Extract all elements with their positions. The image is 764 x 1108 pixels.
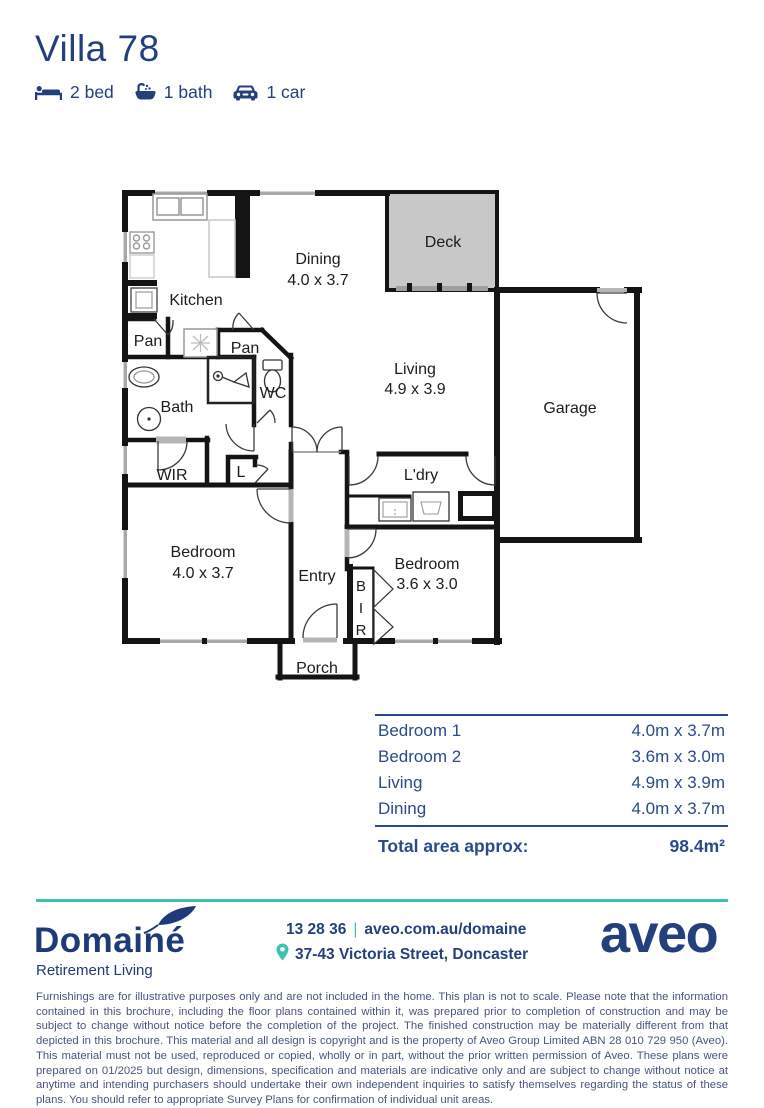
brand-name: Domainé xyxy=(34,921,185,961)
total-label: Total area approx: xyxy=(378,836,528,857)
room-name: Bedroom 1 xyxy=(378,721,461,740)
oven-appliance xyxy=(131,288,157,312)
separator: | xyxy=(353,921,357,939)
phone-number: 13 28 36 xyxy=(286,921,346,939)
label-bir-b: B xyxy=(356,578,366,595)
feature-baths: 1 bath xyxy=(135,82,213,103)
label-pantry-1: Pan xyxy=(134,333,162,350)
website-link[interactable]: aveo.com.au/domaine xyxy=(364,921,526,939)
bath-basin xyxy=(138,408,161,431)
contact-line-1: 13 28 36 | aveo.com.au/domaine xyxy=(276,921,536,939)
car-icon xyxy=(233,85,258,101)
bath-vanity xyxy=(129,367,159,387)
label-bedroom-2-dim: 3.6 x 3.0 xyxy=(396,576,457,593)
table-row: Dining 4.0m x 3.7m xyxy=(375,794,728,820)
wall-stub-2 xyxy=(125,313,157,319)
label-bath: Bath xyxy=(161,399,194,416)
contact-block: 13 28 36 | aveo.com.au/domaine 37-43 Vic… xyxy=(276,921,536,966)
feature-summary: 2 bed 1 bath 1 car xyxy=(35,82,305,103)
laundry-trough xyxy=(413,492,449,521)
table-row: Living 4.9m x 3.9m xyxy=(375,768,728,794)
room-name: Bedroom 2 xyxy=(378,747,461,766)
room-size: 4.0m x 3.7m xyxy=(631,799,725,818)
disclaimer-text: Furnishings are for illustrative purpose… xyxy=(36,990,728,1108)
kitchen-sink xyxy=(153,194,207,220)
page-title: Villa 78 xyxy=(35,28,160,70)
domaine-logo: Domainé Retirement Living xyxy=(32,905,232,985)
label-entry: Entry xyxy=(298,568,335,585)
feature-baths-label: 1 bath xyxy=(164,82,213,103)
bath-icon xyxy=(135,83,156,102)
room-name: Living xyxy=(378,773,422,792)
label-bir-i: I xyxy=(359,600,363,617)
location-pin-icon xyxy=(276,943,289,966)
feature-beds: 2 bed xyxy=(35,82,114,103)
label-wc: WC xyxy=(260,385,287,402)
total-value: 98.4m² xyxy=(670,836,725,857)
label-bir-r: R xyxy=(356,622,367,639)
bir-doors xyxy=(374,570,393,644)
label-living: Living xyxy=(394,361,436,378)
label-dining: Dining xyxy=(295,251,340,268)
label-bedroom-2: Bedroom xyxy=(395,556,460,573)
floor-plan: Deck Dining 4.0 x 3.7 Kitchen Pan Pan Li… xyxy=(110,180,660,700)
label-linen: L xyxy=(237,464,246,481)
fridge-space xyxy=(184,329,217,357)
washing-machine xyxy=(379,498,411,521)
laundry-cupboard xyxy=(458,491,497,521)
label-garage: Garage xyxy=(543,400,596,417)
label-laundry: L'dry xyxy=(404,467,438,484)
label-bedroom-1-dim: 4.0 x 3.7 xyxy=(172,565,233,582)
bed-icon xyxy=(35,84,62,101)
label-dining-dim: 4.0 x 3.7 xyxy=(287,272,348,289)
shower xyxy=(208,357,254,403)
feature-cars: 1 car xyxy=(233,82,305,103)
label-pantry-2: Pan xyxy=(231,340,259,357)
divider-line xyxy=(36,899,728,902)
label-kitchen: Kitchen xyxy=(169,292,222,309)
wall-stub-1 xyxy=(125,280,157,286)
cooktop xyxy=(130,232,154,278)
room-name: Dining xyxy=(378,799,426,818)
brand-tagline: Retirement Living xyxy=(36,962,153,979)
room-size: 4.9m x 3.9m xyxy=(631,773,725,792)
address-text: 37-43 Victoria Street, Doncaster xyxy=(295,946,528,964)
table-row: Bedroom 1 4.0m x 3.7m xyxy=(375,716,728,742)
aveo-logo: aveo xyxy=(600,903,717,965)
kitchen-peninsula-wall xyxy=(235,193,250,278)
label-porch: Porch xyxy=(296,660,338,677)
table-total-row: Total area approx: 98.4m² xyxy=(375,827,728,857)
contact-line-2: 37-43 Victoria Street, Doncaster xyxy=(276,943,536,966)
label-bedroom-1: Bedroom xyxy=(171,544,236,561)
dimensions-table: Bedroom 1 4.0m x 3.7m Bedroom 2 3.6m x 3… xyxy=(375,714,728,857)
label-deck: Deck xyxy=(425,234,462,251)
label-wir: WIR xyxy=(156,467,187,484)
feature-cars-label: 1 car xyxy=(266,82,305,103)
room-size: 3.6m x 3.0m xyxy=(631,747,725,766)
room-size: 4.0m x 3.7m xyxy=(631,721,725,740)
kitchen-bench xyxy=(209,220,235,277)
label-living-dim: 4.9 x 3.9 xyxy=(384,381,445,398)
feature-beds-label: 2 bed xyxy=(70,82,114,103)
table-row: Bedroom 2 3.6m x 3.0m xyxy=(375,742,728,768)
